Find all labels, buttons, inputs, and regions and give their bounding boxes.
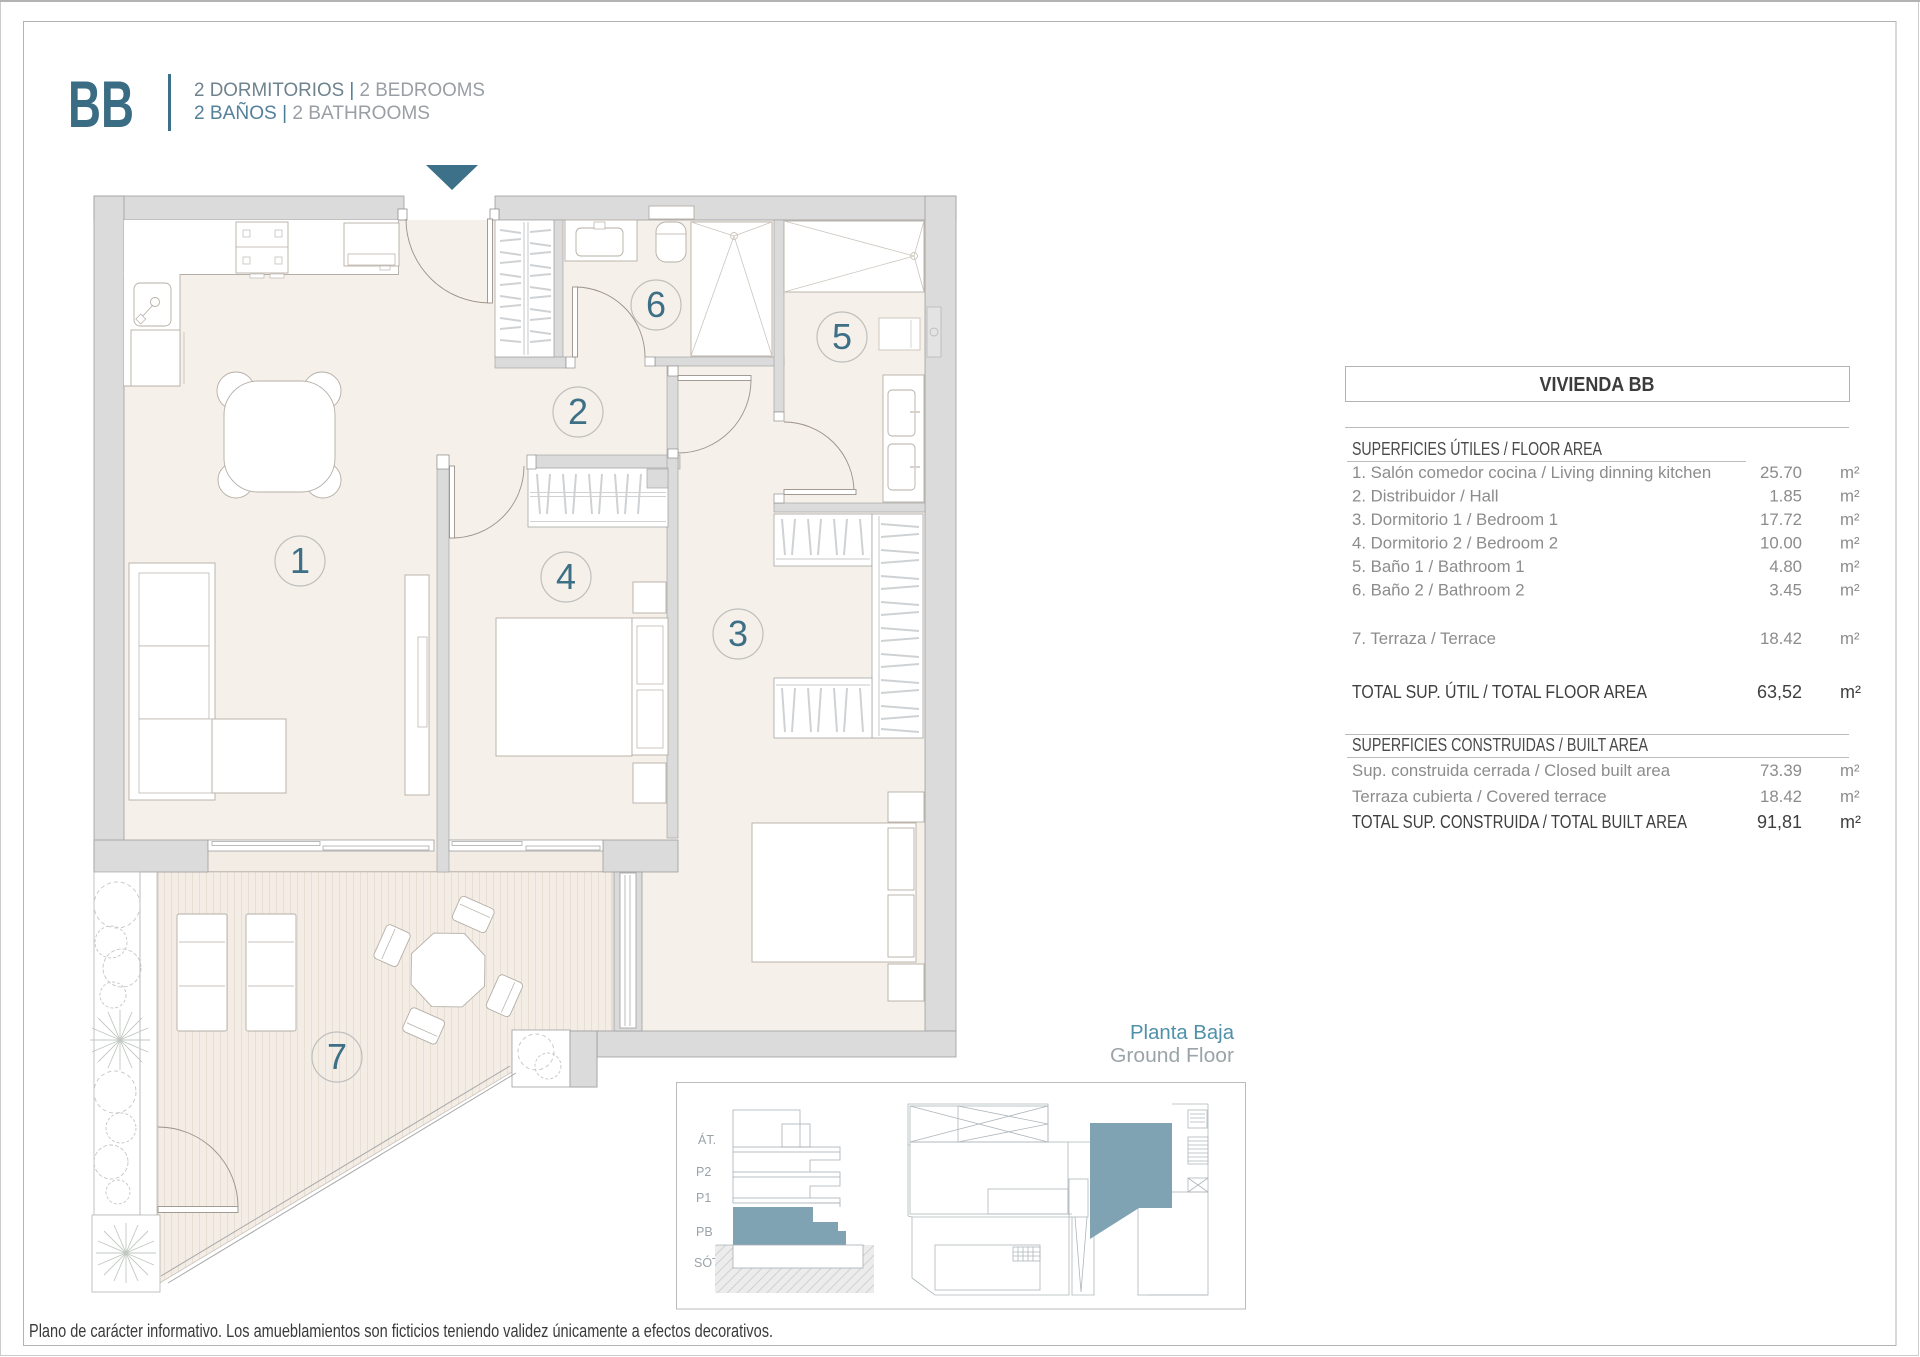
- svg-text:2 BAÑOS | 2 BATHROOMS: 2 BAÑOS | 2 BATHROOMS: [194, 100, 430, 124]
- svg-text:91,81: 91,81: [1757, 812, 1802, 832]
- svg-text:3: 3: [728, 613, 748, 654]
- svg-text:SUPERFICIES CONSTRUIDAS / BUIL: SUPERFICIES CONSTRUIDAS / BUILT AREA: [1352, 734, 1649, 755]
- svg-text:BB: BB: [68, 67, 134, 141]
- svg-text:m²: m²: [1840, 812, 1861, 832]
- svg-text:m²: m²: [1840, 463, 1860, 482]
- svg-text:18.42: 18.42: [1760, 629, 1802, 648]
- svg-text:4: 4: [556, 556, 576, 597]
- svg-text:3. Dormitorio 1 / Bedroom 1: 3. Dormitorio 1 / Bedroom 1: [1352, 510, 1558, 529]
- svg-text:Plano de carácter informativo.: Plano de carácter informativo. Los amueb…: [29, 1321, 773, 1341]
- svg-text:TOTAL SUP. CONSTRUIDA / TOTAL: TOTAL SUP. CONSTRUIDA / TOTAL BUILT AREA: [1352, 812, 1687, 832]
- svg-text:ÁT.: ÁT.: [698, 1132, 716, 1147]
- svg-text:P1: P1: [696, 1191, 711, 1205]
- svg-text:6. Baño 2 / Bathroom 2: 6. Baño 2 / Bathroom 2: [1352, 581, 1525, 600]
- svg-text:1: 1: [290, 540, 310, 581]
- svg-text:m²: m²: [1840, 629, 1860, 648]
- svg-text:3.45: 3.45: [1769, 581, 1802, 600]
- svg-text:m²: m²: [1840, 534, 1860, 553]
- svg-text:Ground Floor: Ground Floor: [1110, 1045, 1234, 1067]
- svg-text:m²: m²: [1840, 682, 1861, 702]
- svg-text:Planta Baja: Planta Baja: [1130, 1022, 1235, 1044]
- svg-text:P2: P2: [696, 1165, 711, 1179]
- svg-text:4.80: 4.80: [1769, 557, 1802, 576]
- svg-text:7: 7: [327, 1036, 347, 1077]
- svg-text:TOTAL SUP. ÚTIL / TOTAL FLOOR: TOTAL SUP. ÚTIL / TOTAL FLOOR AREA: [1352, 681, 1647, 702]
- svg-text:63,52: 63,52: [1757, 682, 1802, 702]
- svg-text:7. Terraza / Terrace: 7. Terraza / Terrace: [1352, 629, 1496, 648]
- svg-text:5: 5: [832, 316, 852, 357]
- svg-text:PB: PB: [696, 1225, 713, 1239]
- svg-text:Terraza cubierta / Covered ter: Terraza cubierta / Covered terrace: [1352, 787, 1607, 806]
- svg-text:Sup. construida cerrada / Clos: Sup. construida cerrada / Closed built a…: [1352, 761, 1671, 780]
- svg-text:73.39: 73.39: [1760, 761, 1802, 780]
- svg-text:m²: m²: [1840, 761, 1860, 780]
- svg-text:10.00: 10.00: [1760, 534, 1802, 553]
- svg-text:2. Distribuidor / Hall: 2. Distribuidor / Hall: [1352, 487, 1498, 506]
- svg-text:m²: m²: [1840, 581, 1860, 600]
- svg-text:m²: m²: [1840, 487, 1860, 506]
- svg-text:25.70: 25.70: [1760, 463, 1802, 482]
- svg-text:2: 2: [568, 391, 588, 432]
- svg-text:m²: m²: [1840, 510, 1860, 529]
- svg-text:17.72: 17.72: [1760, 510, 1802, 529]
- svg-text:m²: m²: [1840, 787, 1860, 806]
- svg-text:m²: m²: [1840, 557, 1860, 576]
- svg-text:1.85: 1.85: [1769, 487, 1802, 506]
- svg-text:6: 6: [646, 284, 666, 325]
- svg-text:2 DORMITORIOS | 2 BEDROOMS: 2 DORMITORIOS | 2 BEDROOMS: [194, 79, 485, 101]
- svg-text:VIVIENDA BB: VIVIENDA BB: [1540, 374, 1655, 396]
- svg-text:1. Salón comedor cocina / Livi: 1. Salón comedor cocina / Living dinning…: [1352, 463, 1711, 482]
- svg-text:18.42: 18.42: [1760, 787, 1802, 806]
- svg-text:4. Dormitorio 2 / Bedroom 2: 4. Dormitorio 2 / Bedroom 2: [1352, 534, 1558, 553]
- svg-text:5. Baño 1 / Bathroom 1: 5. Baño 1 / Bathroom 1: [1352, 557, 1525, 576]
- svg-text:SUPERFICIES ÚTILES / FLOOR ARE: SUPERFICIES ÚTILES / FLOOR AREA: [1352, 438, 1602, 459]
